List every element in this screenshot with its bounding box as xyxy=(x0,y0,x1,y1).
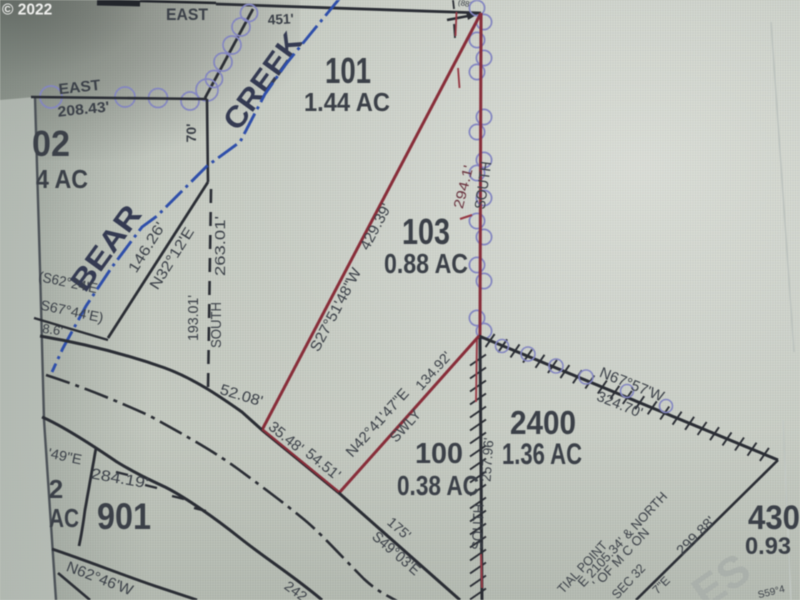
svg-text:0.88 AC: 0.88 AC xyxy=(384,248,468,279)
svg-text:257.96': 257.96' xyxy=(477,437,496,482)
svg-text:AC: AC xyxy=(49,503,79,533)
svg-text:2400: 2400 xyxy=(510,404,576,441)
svg-text:4 AC: 4 AC xyxy=(36,164,88,194)
svg-text:2: 2 xyxy=(49,474,63,504)
svg-text:101: 101 xyxy=(325,50,371,91)
svg-text:0.93: 0.93 xyxy=(745,533,791,560)
svg-text:EAST: EAST xyxy=(166,5,209,24)
svg-text:0.38 AC: 0.38 AC xyxy=(397,470,479,501)
svg-text:SOUTH: SOUTH xyxy=(469,504,488,551)
svg-text:1.36 AC: 1.36 AC xyxy=(502,438,582,471)
svg-text:263.01': 263.01' xyxy=(212,216,229,276)
svg-text:02: 02 xyxy=(32,123,70,164)
svg-text:© 2022: © 2022 xyxy=(2,2,52,19)
svg-text:193.01': 193.01' xyxy=(185,295,202,341)
svg-text:430: 430 xyxy=(748,499,800,537)
svg-text:901: 901 xyxy=(97,496,151,537)
svg-text:100: 100 xyxy=(415,438,463,470)
svg-text:103: 103 xyxy=(402,211,450,252)
svg-text:SOUTH: SOUTH xyxy=(208,302,225,348)
svg-text:70': 70' xyxy=(183,124,199,143)
svg-text:451': 451' xyxy=(267,10,294,27)
svg-text:1.44 AC: 1.44 AC xyxy=(304,87,390,117)
